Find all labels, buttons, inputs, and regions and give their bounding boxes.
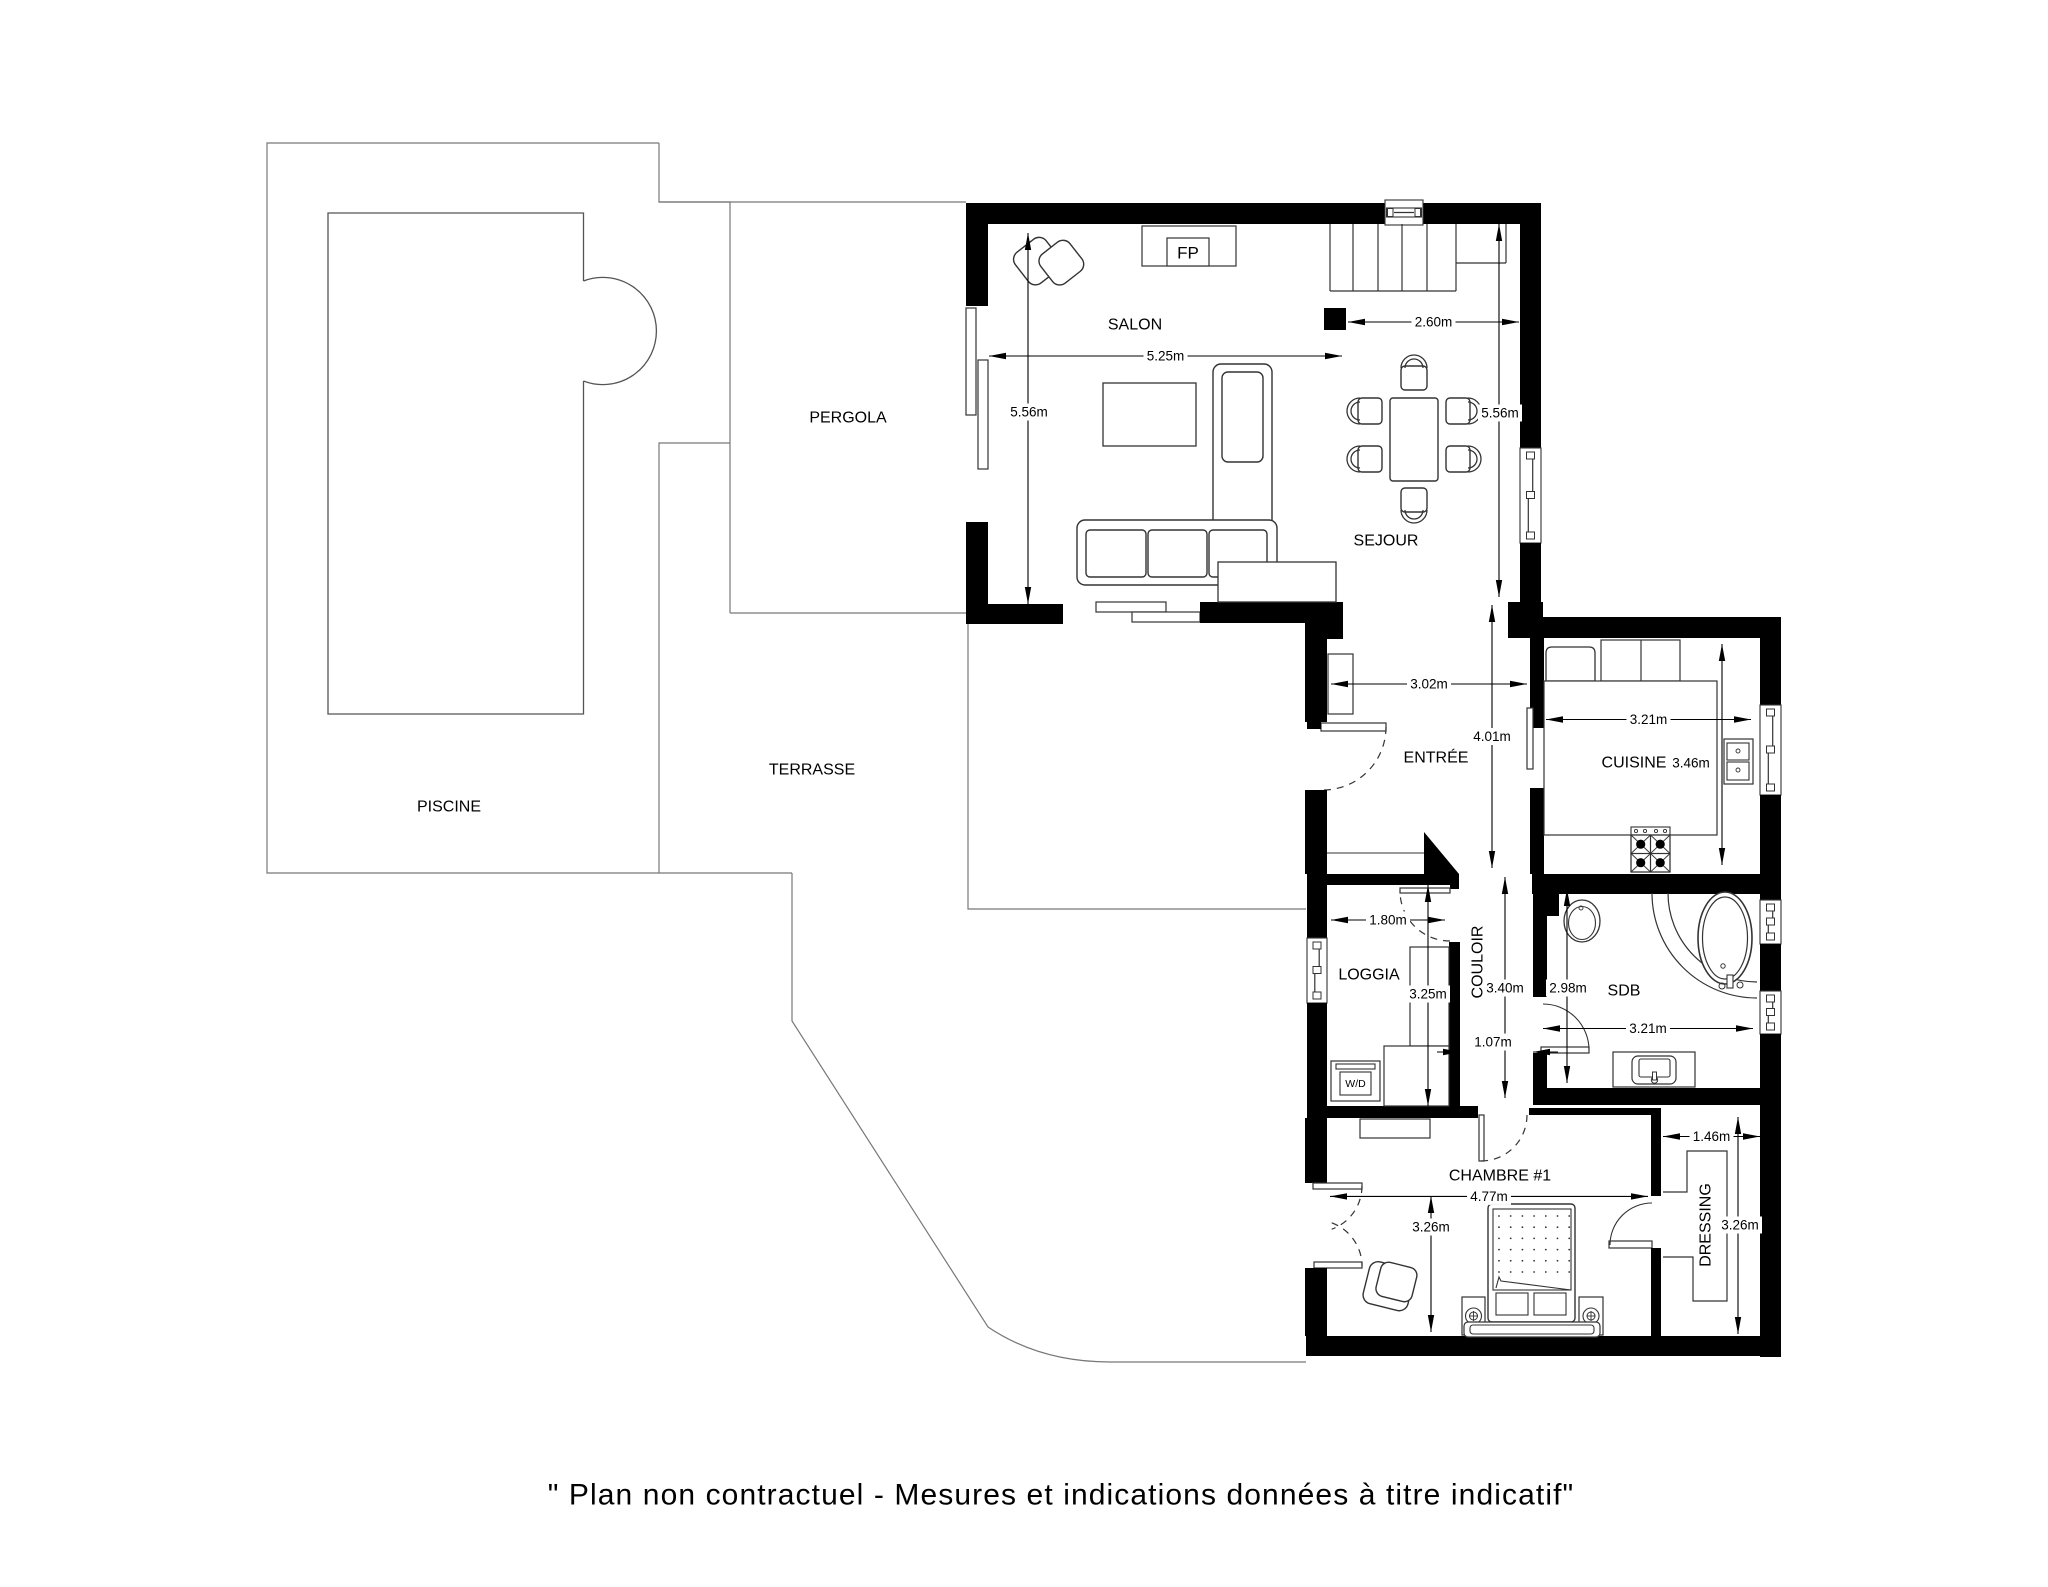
svg-text:3.40m: 3.40m [1486,981,1524,996]
svg-text:4.77m: 4.77m [1470,1189,1508,1204]
svg-text:PISCINE: PISCINE [417,799,481,816]
svg-text:1.46m: 1.46m [1693,1129,1731,1144]
svg-text:1.07m: 1.07m [1474,1035,1512,1050]
svg-text:3.46m: 3.46m [1672,756,1710,771]
svg-text:ENTRÉE: ENTRÉE [1404,748,1469,767]
svg-text:5.56m: 5.56m [1481,406,1519,421]
svg-text:3.26m: 3.26m [1721,1218,1759,1233]
svg-text:SALON: SALON [1108,317,1162,334]
svg-text:CUISINE: CUISINE [1602,755,1667,772]
svg-text:3.26m: 3.26m [1412,1220,1450,1235]
svg-text:3.21m: 3.21m [1629,1021,1667,1036]
svg-text:2.98m: 2.98m [1549,981,1587,996]
svg-text:LOGGIA: LOGGIA [1338,967,1400,984]
svg-text:3.02m: 3.02m [1410,677,1448,692]
svg-text:CHAMBRE #1: CHAMBRE #1 [1449,1168,1551,1185]
svg-text:5.56m: 5.56m [1010,405,1048,420]
svg-text:1.80m: 1.80m [1369,913,1407,928]
svg-text:4.01m: 4.01m [1473,729,1511,744]
svg-text:SEJOUR: SEJOUR [1354,533,1419,550]
svg-text:3.21m: 3.21m [1630,712,1668,727]
svg-text:SDB: SDB [1608,983,1641,1000]
svg-text:" Plan non contractuel - Mesur: " Plan non contractuel - Mesures et indi… [548,1479,1575,1512]
svg-text:5.25m: 5.25m [1147,349,1185,364]
svg-text:DRESSING: DRESSING [1698,1183,1715,1267]
svg-text:FP: FP [1177,244,1199,263]
svg-text:PERGOLA: PERGOLA [809,410,887,427]
svg-text:TERRASSE: TERRASSE [769,762,855,779]
svg-text:3.25m: 3.25m [1409,987,1447,1002]
svg-text:W/D: W/D [1345,1078,1366,1090]
svg-text:2.60m: 2.60m [1415,315,1453,330]
